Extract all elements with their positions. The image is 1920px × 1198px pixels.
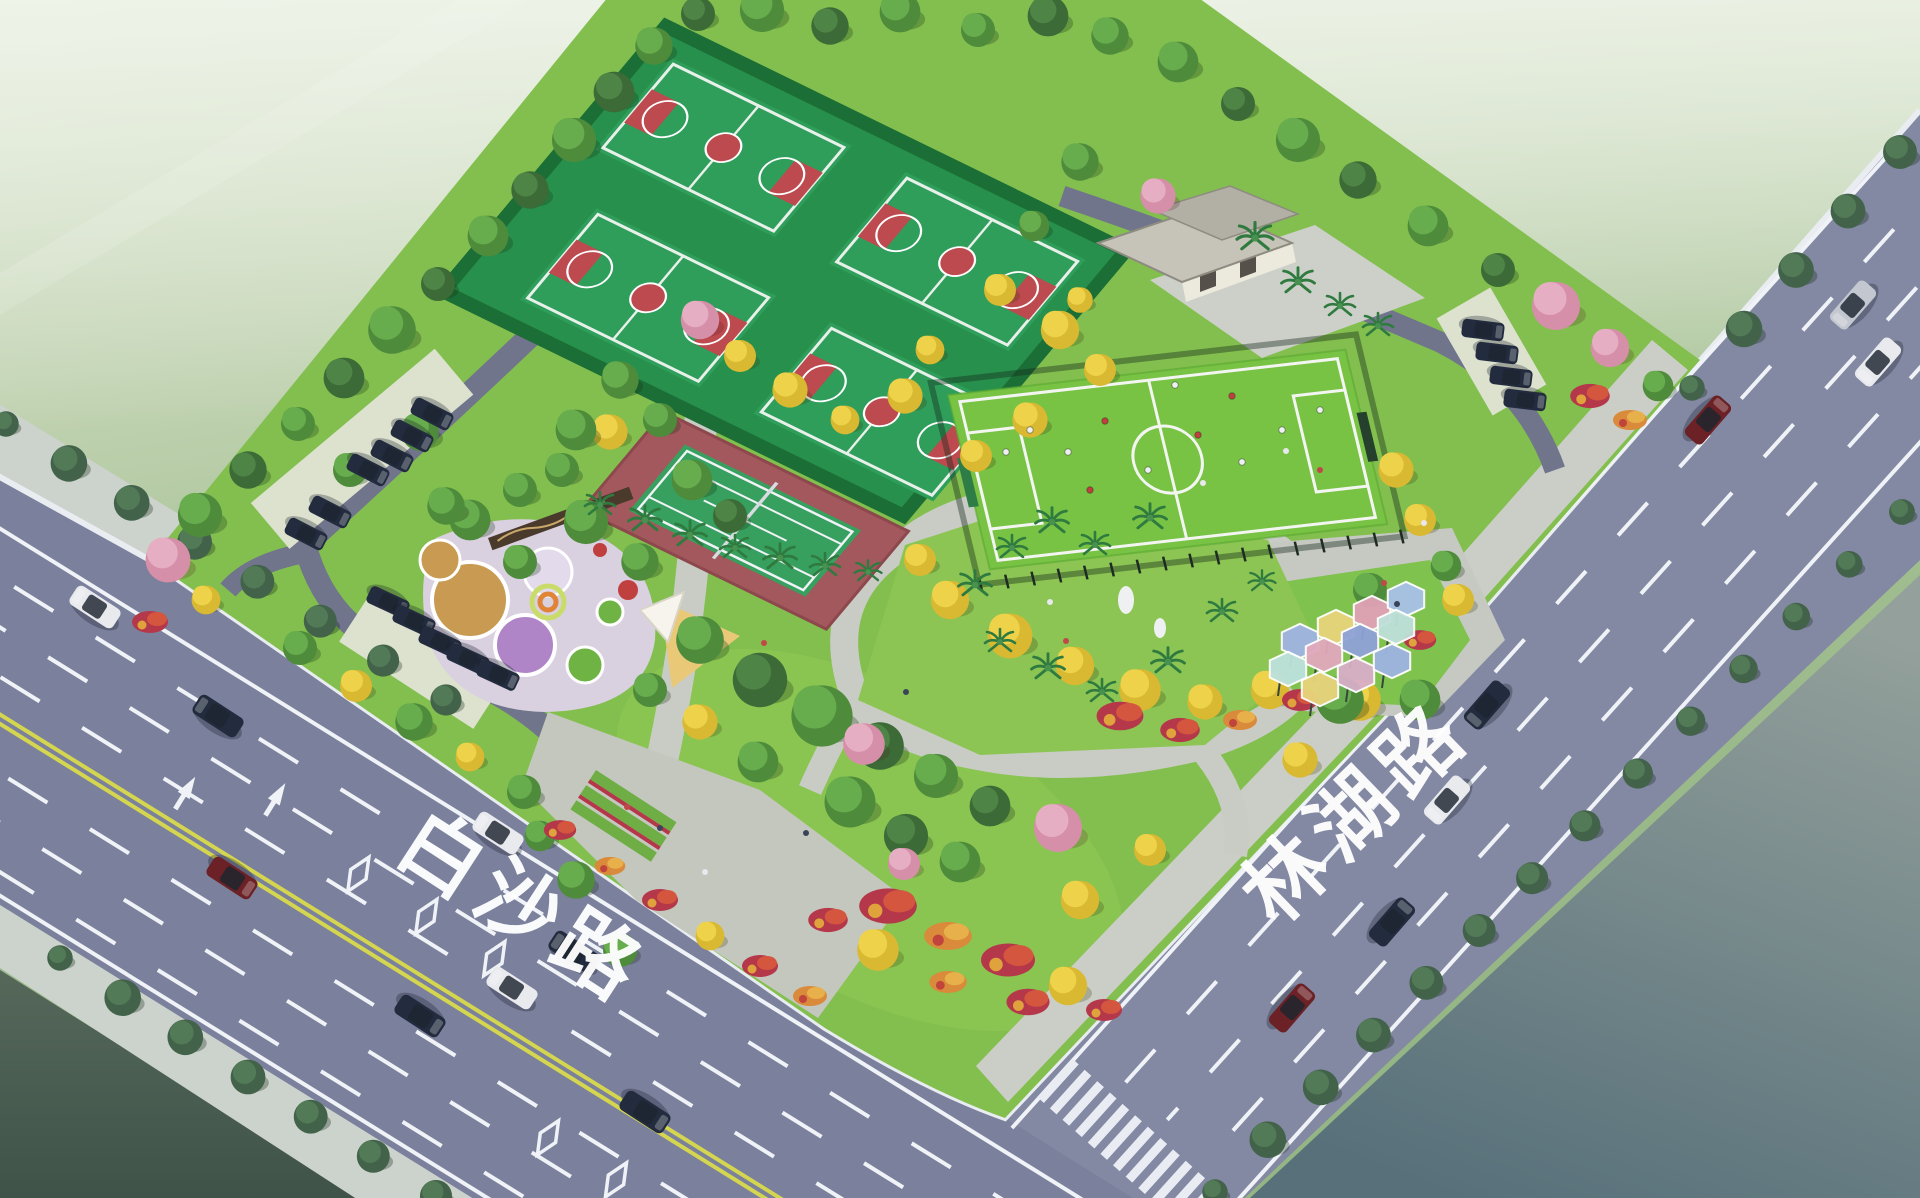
- flower-bed: [595, 857, 626, 875]
- person: [1283, 448, 1289, 454]
- football-player: [1145, 467, 1151, 473]
- football-player: [1003, 449, 1009, 455]
- flower-bed: [929, 971, 966, 993]
- flower-bed: [1006, 989, 1049, 1015]
- football-player: [1317, 407, 1323, 413]
- flower-bed: [924, 922, 972, 950]
- flower-bed: [642, 889, 678, 911]
- flower-bed: [1160, 718, 1200, 742]
- flower-bed: [132, 611, 168, 633]
- football-player: [1087, 487, 1093, 493]
- person: [903, 689, 909, 695]
- person: [1047, 599, 1053, 605]
- football-player: [1279, 427, 1285, 433]
- park-aerial-rendering: 白沙路 林湖路: [0, 0, 1920, 1198]
- person: [702, 869, 708, 875]
- person: [1317, 467, 1323, 473]
- person: [1394, 601, 1400, 607]
- canopy-hexagon: [1302, 672, 1338, 706]
- flower-bed: [544, 820, 576, 840]
- person: [1381, 580, 1387, 586]
- flower-bed: [1097, 702, 1144, 731]
- flower-bed: [808, 908, 848, 932]
- flower-bed: [1086, 999, 1122, 1021]
- football-player: [1195, 432, 1201, 438]
- football-player: [1065, 449, 1071, 455]
- flower-bed: [793, 986, 827, 1006]
- canopy-hexagon: [1374, 644, 1410, 678]
- person: [1200, 480, 1206, 486]
- canopy-hexagon: [1378, 610, 1414, 644]
- flower-bed: [1223, 710, 1257, 730]
- person: [1421, 520, 1427, 526]
- person: [1063, 638, 1069, 644]
- football-player: [1229, 393, 1235, 399]
- flower-bed: [1570, 384, 1610, 408]
- mushroom-play-structure: [618, 580, 638, 600]
- flower-bed: [1613, 410, 1647, 430]
- football-player: [1239, 459, 1245, 465]
- flower-bed: [981, 944, 1035, 977]
- canopy-hexagon: [1306, 638, 1342, 672]
- person: [657, 825, 663, 831]
- football-player: [1027, 427, 1033, 433]
- flower-bed: [859, 888, 917, 923]
- football-player: [1172, 382, 1178, 388]
- canopy-hexagon: [1342, 624, 1378, 658]
- mushroom-play-structure: [593, 543, 607, 557]
- canopy-hexagon: [1270, 652, 1306, 686]
- person: [761, 640, 767, 646]
- rendering-canvas: 白沙路 林湖路: [0, 0, 1920, 1198]
- person: [803, 830, 809, 836]
- flower-bed: [742, 955, 778, 977]
- person: [624, 804, 630, 810]
- canopy-hexagon: [1338, 658, 1374, 692]
- football-player: [1102, 418, 1108, 424]
